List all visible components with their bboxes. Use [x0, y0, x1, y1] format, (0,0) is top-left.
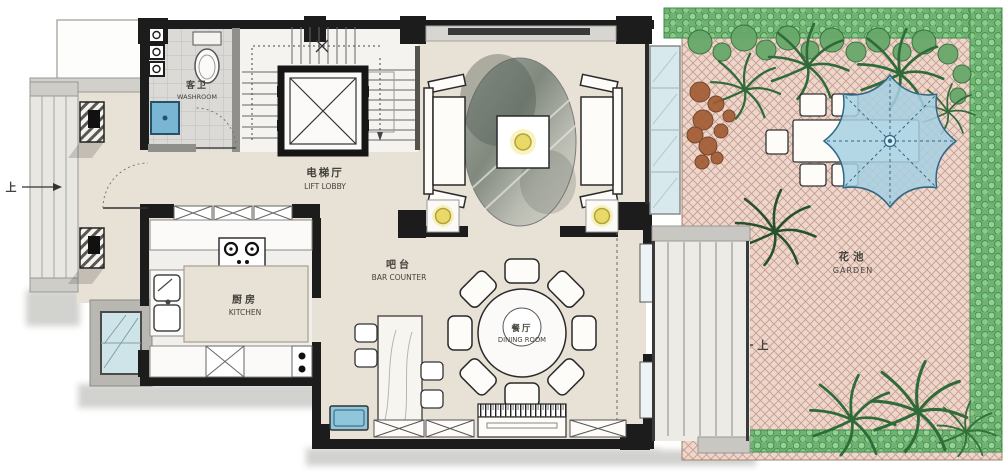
up-right-label: 上 [758, 338, 769, 352]
glass-panel-east [650, 46, 680, 214]
outdoor-chair [800, 164, 826, 186]
floor-plan-svg: 花池 GARDEN 上 上 [0, 0, 1005, 475]
label-garden-zh: 花池 [839, 250, 868, 263]
wall-cabinets [174, 206, 292, 220]
label-washroom-zh: 客卫 [185, 79, 208, 91]
east-steps [652, 226, 750, 453]
outdoor-chair [766, 130, 788, 154]
elevator [277, 69, 369, 153]
bar-stool [421, 362, 443, 380]
ceiling-light [427, 200, 459, 232]
hedge-right [970, 8, 1002, 452]
label-garden-en: GARDEN [833, 266, 873, 275]
garden-label: 花池 GARDEN [833, 250, 873, 275]
bar-stool [421, 390, 443, 408]
label-bar-en: BAR COUNTER [372, 273, 427, 282]
label-lift-lobby-en: LIFT LOBBY [304, 182, 346, 191]
label-lift-lobby-zh: 电梯厅 [306, 166, 344, 179]
parasol [824, 75, 956, 207]
label-bar-zh: 吧台 [386, 258, 412, 271]
label-dining-zh: 餐厅 [510, 323, 532, 334]
floor-plan: 花池 GARDEN 上 上 [0, 0, 1005, 475]
label-dining-en: DINING ROOM [498, 336, 546, 344]
label-kitchen-zh: 厨房 [232, 293, 258, 306]
bar-sink [330, 406, 368, 430]
kitchen-sink [150, 270, 184, 336]
bar-stool [355, 349, 377, 367]
base-cabinets [150, 346, 312, 377]
wing-structure [30, 20, 142, 92]
ceiling-light [510, 129, 536, 155]
meter-boxes [149, 28, 164, 76]
bar-counter [378, 316, 422, 428]
label-kitchen-en: KITCHEN [229, 308, 262, 317]
outdoor-chair [800, 94, 826, 116]
ceiling-light [586, 200, 618, 232]
up-left-label: 上 [6, 180, 17, 194]
kitchen-room: 厨房 KITCHEN [150, 206, 312, 377]
label-washroom-en: WASHROOM [177, 93, 217, 101]
toilet [193, 32, 221, 83]
bar-stool [355, 324, 377, 342]
gas-stove [219, 238, 265, 268]
sideboard [478, 404, 566, 437]
